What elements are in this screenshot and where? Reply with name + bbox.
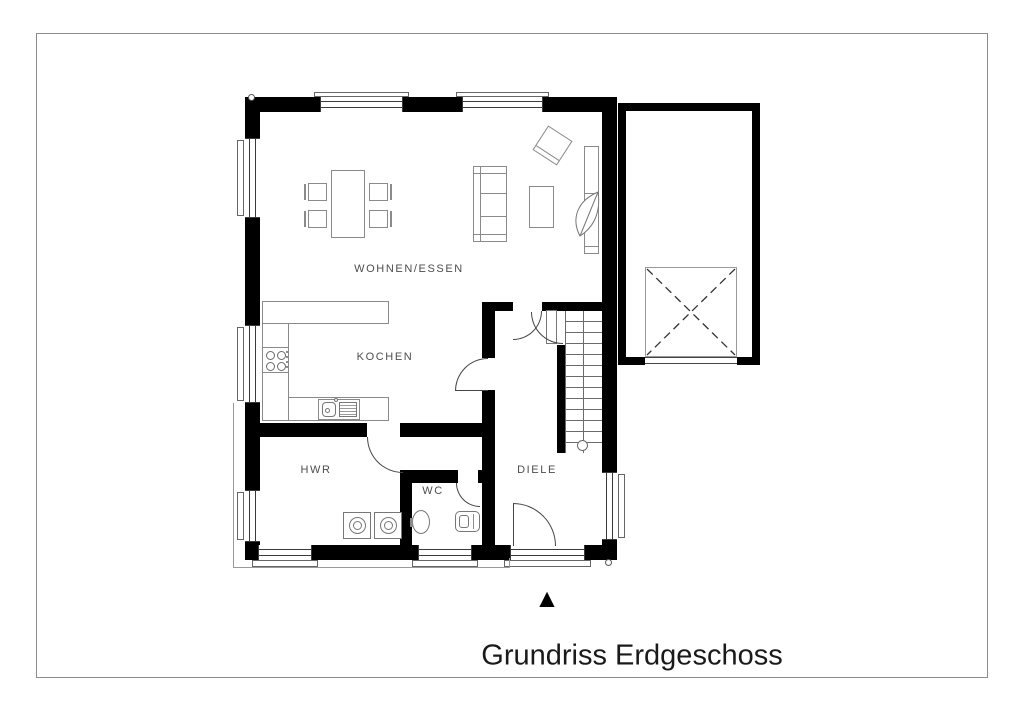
window-west-living [245,138,260,218]
wall-kitchen-hwr-left [256,423,367,437]
garage-door [645,357,737,364]
garage-wall-south-right [737,357,760,365]
stove-burner [266,351,275,360]
wall-kitchen-hwr-right [400,423,493,437]
stove-knob [286,356,288,358]
dryer-icon [374,512,402,539]
dining-chair [308,210,327,228]
sofa-seat-divider [480,193,506,194]
garage-wall-south-left [618,357,645,365]
floor-plan-sheet: WOHNEN/ESSEN KOCHEN HWR WC DIELE ▲ Grund… [0,0,1024,723]
stove-icon [262,347,289,373]
sink-drainer [339,402,357,417]
stove-burner [277,362,286,371]
page-title: Grundriss Erdgeschoss [481,640,782,673]
window-sill [237,327,244,401]
sideboard-shelf-line [585,193,598,194]
coffee-table [529,186,554,228]
chair-back [304,211,306,227]
window-west-hwr [245,490,260,542]
window-east-diele [602,472,617,540]
dining-table [331,170,365,238]
sofa-back-line [480,167,481,241]
stove-knob [286,361,288,363]
window-sill [456,92,549,97]
sideboard [584,146,599,254]
wall-stair-west [557,345,565,453]
wall-north [245,97,617,112]
washbasin-tap [410,518,413,527]
window-south-hwr [258,545,312,560]
washer-drum-inner [353,521,362,530]
sideboard-shelf-line [585,246,598,247]
window-sill [237,492,244,540]
window-north-2 [462,97,543,112]
wall-wc-top-corner [478,470,495,483]
sofa-armrest-line [474,234,506,235]
window-north-1 [320,97,403,112]
sofa [473,166,507,242]
sofa-armrest-line [474,173,506,174]
room-label-hwr: HWR [300,464,331,476]
chair-back [390,184,392,200]
corner-marker [248,94,255,101]
chair-back [390,211,392,227]
washing-machine-icon [343,512,371,539]
wall-kitchen-diele-lower [482,390,495,545]
dining-chair [369,210,388,228]
stove-burner [266,362,275,371]
staircase [565,311,602,453]
corner-marker [605,559,612,566]
door-leaf-entrance [513,503,514,546]
staircase-start-marker [577,440,588,451]
kitchen-sink-icon [318,399,360,420]
chair-back [304,184,306,200]
entrance-door-threshold [510,545,585,560]
garage-wall-east [752,103,760,365]
garage-wall-west [618,103,626,365]
toilet-bowl [459,515,469,528]
terrace-line-join [509,558,510,567]
sheet-border [36,33,988,678]
garage-skylight-box [645,267,737,357]
window-sill [618,474,625,538]
room-label-wc: WC [422,485,444,497]
window-sill [252,560,318,567]
toilet-tank-line [473,514,474,529]
entrance-sill [504,560,591,567]
dining-chair [369,183,388,201]
toilet-icon [455,511,480,532]
sink-faucet [334,398,338,402]
window-south-wc [418,545,472,560]
sink-drain [325,408,330,413]
window-sill [314,92,409,97]
wall-kitchen-diele-upper [482,302,495,358]
terrace-line-south [233,567,510,568]
sofa-seat-divider [480,216,506,217]
window-sill [412,560,478,567]
kitchen-counter-top [262,301,389,324]
garage-wall-north [618,103,760,111]
terrace-line-west [233,403,234,567]
stove-knob [286,366,288,368]
window-west-kitchen [245,325,260,403]
window-sill [237,140,244,216]
stove-knob [286,351,288,353]
dryer-drum-inner [384,521,393,530]
dining-chair [308,183,327,201]
door-leaf-kitchen [455,390,488,391]
wall-hall-top-a [495,302,513,311]
stove-burner [277,351,286,360]
room-label-wohnen-essen: WOHNEN/ESSEN [354,263,464,275]
staircase-center-line [583,311,584,453]
washbasin-icon [412,510,430,534]
room-label-kochen: KOCHEN [357,351,414,363]
room-label-diele: DIELE [517,464,557,476]
north-arrow-icon: ▲ [534,585,560,611]
